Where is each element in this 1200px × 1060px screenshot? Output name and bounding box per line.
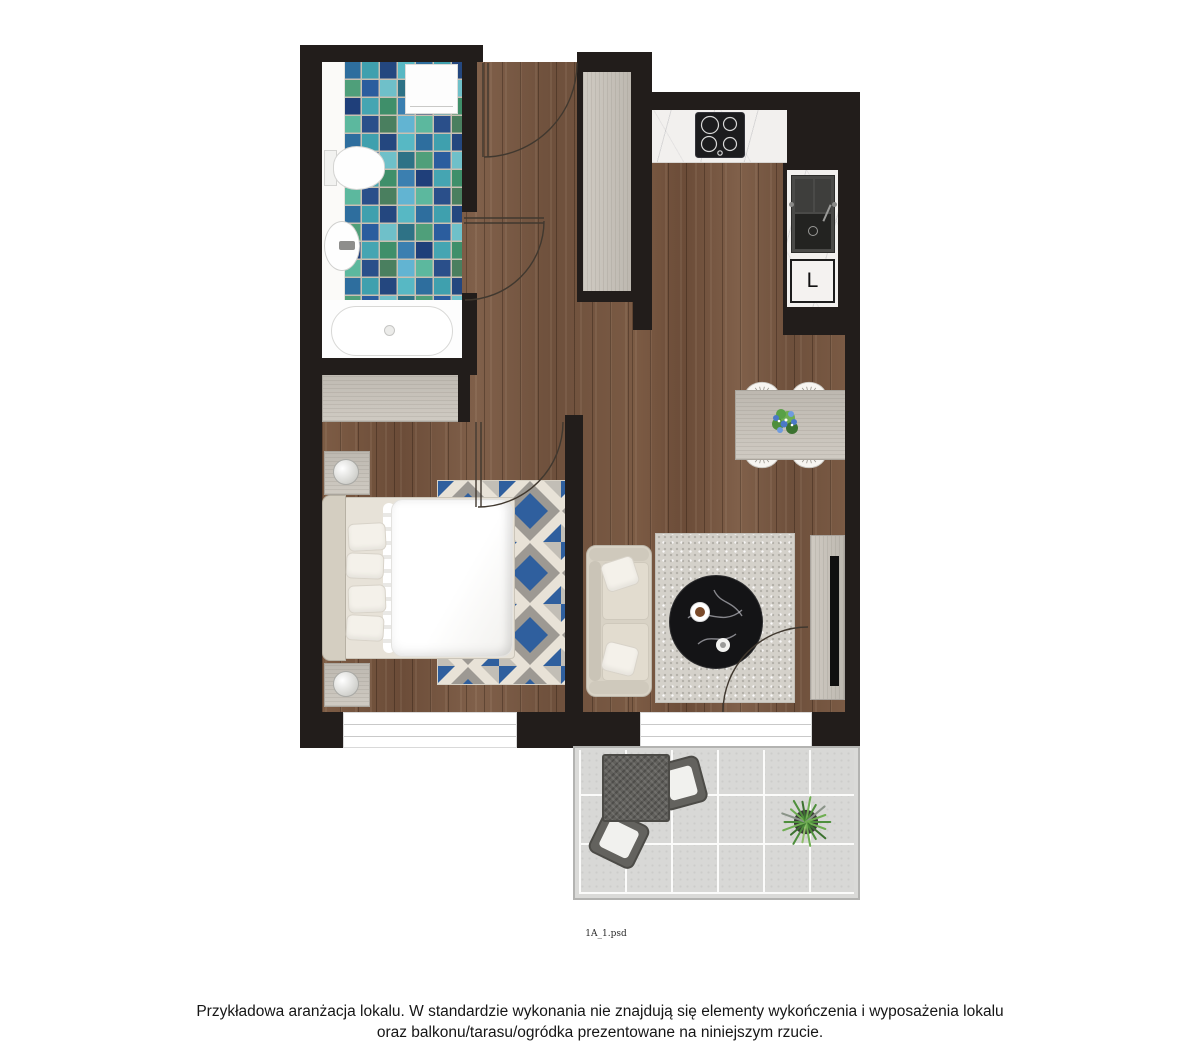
hallway-wardrobe (581, 70, 633, 293)
bed-pillow (345, 614, 384, 642)
nightstand-lamp-bottom (333, 671, 359, 697)
bed-duvet (391, 499, 513, 657)
wall-left (300, 45, 322, 745)
cooktop (695, 112, 745, 158)
wall-bathroom-right-upper (462, 62, 477, 212)
plan-filename: 1A_1.psd (540, 929, 672, 939)
tv (830, 556, 839, 686)
bed-pillow (347, 522, 386, 552)
bed-pillow (346, 552, 385, 579)
sofa-armrest-bottom (589, 681, 649, 694)
bedroom-window (343, 712, 517, 748)
sofa (586, 545, 652, 697)
wall-bedroom-door-jamb (458, 375, 470, 422)
potted-plant (778, 792, 834, 852)
balcony-window-door (640, 712, 812, 748)
bathtub-drain (384, 325, 395, 336)
bedroom-dresser (322, 368, 464, 422)
washing-machine (405, 64, 458, 114)
toilet (333, 146, 385, 190)
sink-faucet (339, 241, 355, 250)
coffee-cup-contents (695, 607, 705, 617)
sink-drain (808, 226, 818, 236)
fridge-label: L (807, 269, 819, 293)
balcony-table (602, 754, 670, 822)
coffee-table (670, 576, 762, 668)
bed-pillow (348, 584, 387, 613)
footer-disclaimer: Przykładowa aranżacja lokalu. W standard… (0, 1001, 1200, 1043)
floor-plan-page: L (0, 0, 1200, 1060)
wall-top-left (300, 45, 483, 62)
table-decor-dot (720, 642, 726, 648)
coffee-cup (690, 602, 710, 622)
disclaimer-line-2: oraz balkonu/tarasu/ogródka prezentowane… (0, 1022, 1200, 1043)
bathtub (322, 300, 462, 362)
sink-knob-left (789, 202, 794, 207)
wall-bathroom-bottom (300, 358, 470, 375)
wall-wardrobe-cap (577, 293, 633, 302)
wall-hall-kitchen-divider (633, 52, 652, 330)
balcony (573, 746, 860, 900)
wall-bedroom-partition (565, 415, 583, 715)
nightstand-lamp-top (333, 459, 359, 485)
fridge-marker: L (790, 259, 835, 303)
sofa-backrest (589, 561, 601, 681)
table-flowers (766, 404, 802, 440)
bed-headboard (322, 495, 346, 661)
disclaimer-line-1: Przykładowa aranżacja lokalu. W standard… (0, 1001, 1200, 1022)
wall-right (845, 92, 860, 745)
balcony-chair-seat (598, 819, 640, 860)
sink-drainboard-left (795, 179, 813, 212)
kitchen-sink (791, 175, 835, 253)
sink-knob-right (832, 202, 837, 207)
wall-kitchen-top (650, 92, 860, 110)
washing-machine-line (410, 106, 453, 107)
table-decor (716, 638, 730, 652)
tv-cabinet (810, 535, 845, 700)
